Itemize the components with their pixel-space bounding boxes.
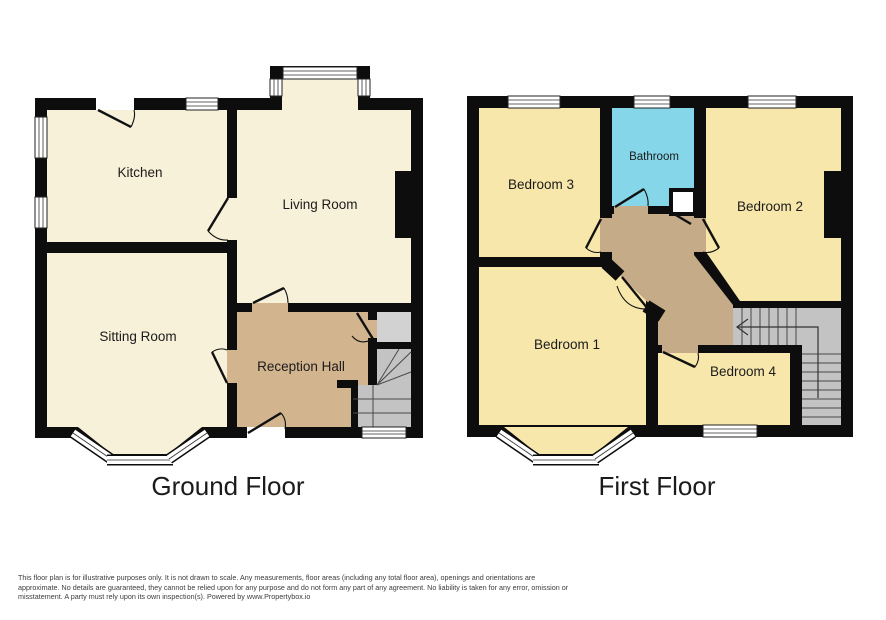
floorplan-canvas: Kitchen Living Room Sitting Room Recepti…: [0, 0, 886, 620]
bedroom4-window: [703, 425, 757, 437]
disclaimer-line: approximate. No details are guaranteed, …: [18, 583, 678, 593]
bedroom2-label: Bedroom 2: [737, 199, 803, 214]
disclaimer-line: This floor plan is for illustrative purp…: [18, 573, 678, 583]
kitchen-window: [186, 98, 218, 110]
bedroom4-label: Bedroom 4: [710, 364, 777, 379]
kitchen-side-window: [35, 117, 47, 158]
bedroom2-window: [748, 96, 796, 108]
first-floor-plan: Bedroom 3 Bathroom Bedroom 2 Bedroom 1 B…: [467, 96, 853, 501]
stairs-window: [362, 427, 406, 438]
bedroom3-window: [508, 96, 560, 108]
floorplan-page: Kitchen Living Room Sitting Room Recepti…: [0, 0, 886, 620]
living-room-label: Living Room: [282, 197, 357, 212]
first-floor-title: First Floor: [599, 471, 716, 501]
sitting-room-label: Sitting Room: [99, 329, 176, 344]
disclaimer-line: misstatement. A party must rely upon its…: [18, 592, 678, 602]
bedroom1-label: Bedroom 1: [534, 337, 600, 352]
ground-floor-plan: Kitchen Living Room Sitting Room Recepti…: [35, 66, 423, 501]
reception-hall-label: Reception Hall: [257, 359, 345, 374]
bedroom3-label: Bedroom 3: [508, 177, 574, 192]
living-room-chimney-breast: [395, 171, 411, 238]
bedroom2-chimney-breast: [824, 171, 841, 238]
bathroom-window: [634, 96, 670, 108]
disclaimer-text: This floor plan is for illustrative purp…: [18, 573, 678, 602]
ground-floor-title: Ground Floor: [151, 471, 305, 501]
bathroom-label: Bathroom: [629, 151, 679, 163]
sitting-side-window: [35, 197, 47, 228]
kitchen-label: Kitchen: [117, 165, 162, 180]
bathroom-room-fill: [612, 108, 694, 188]
living-room-bay-fill: [282, 79, 358, 110]
